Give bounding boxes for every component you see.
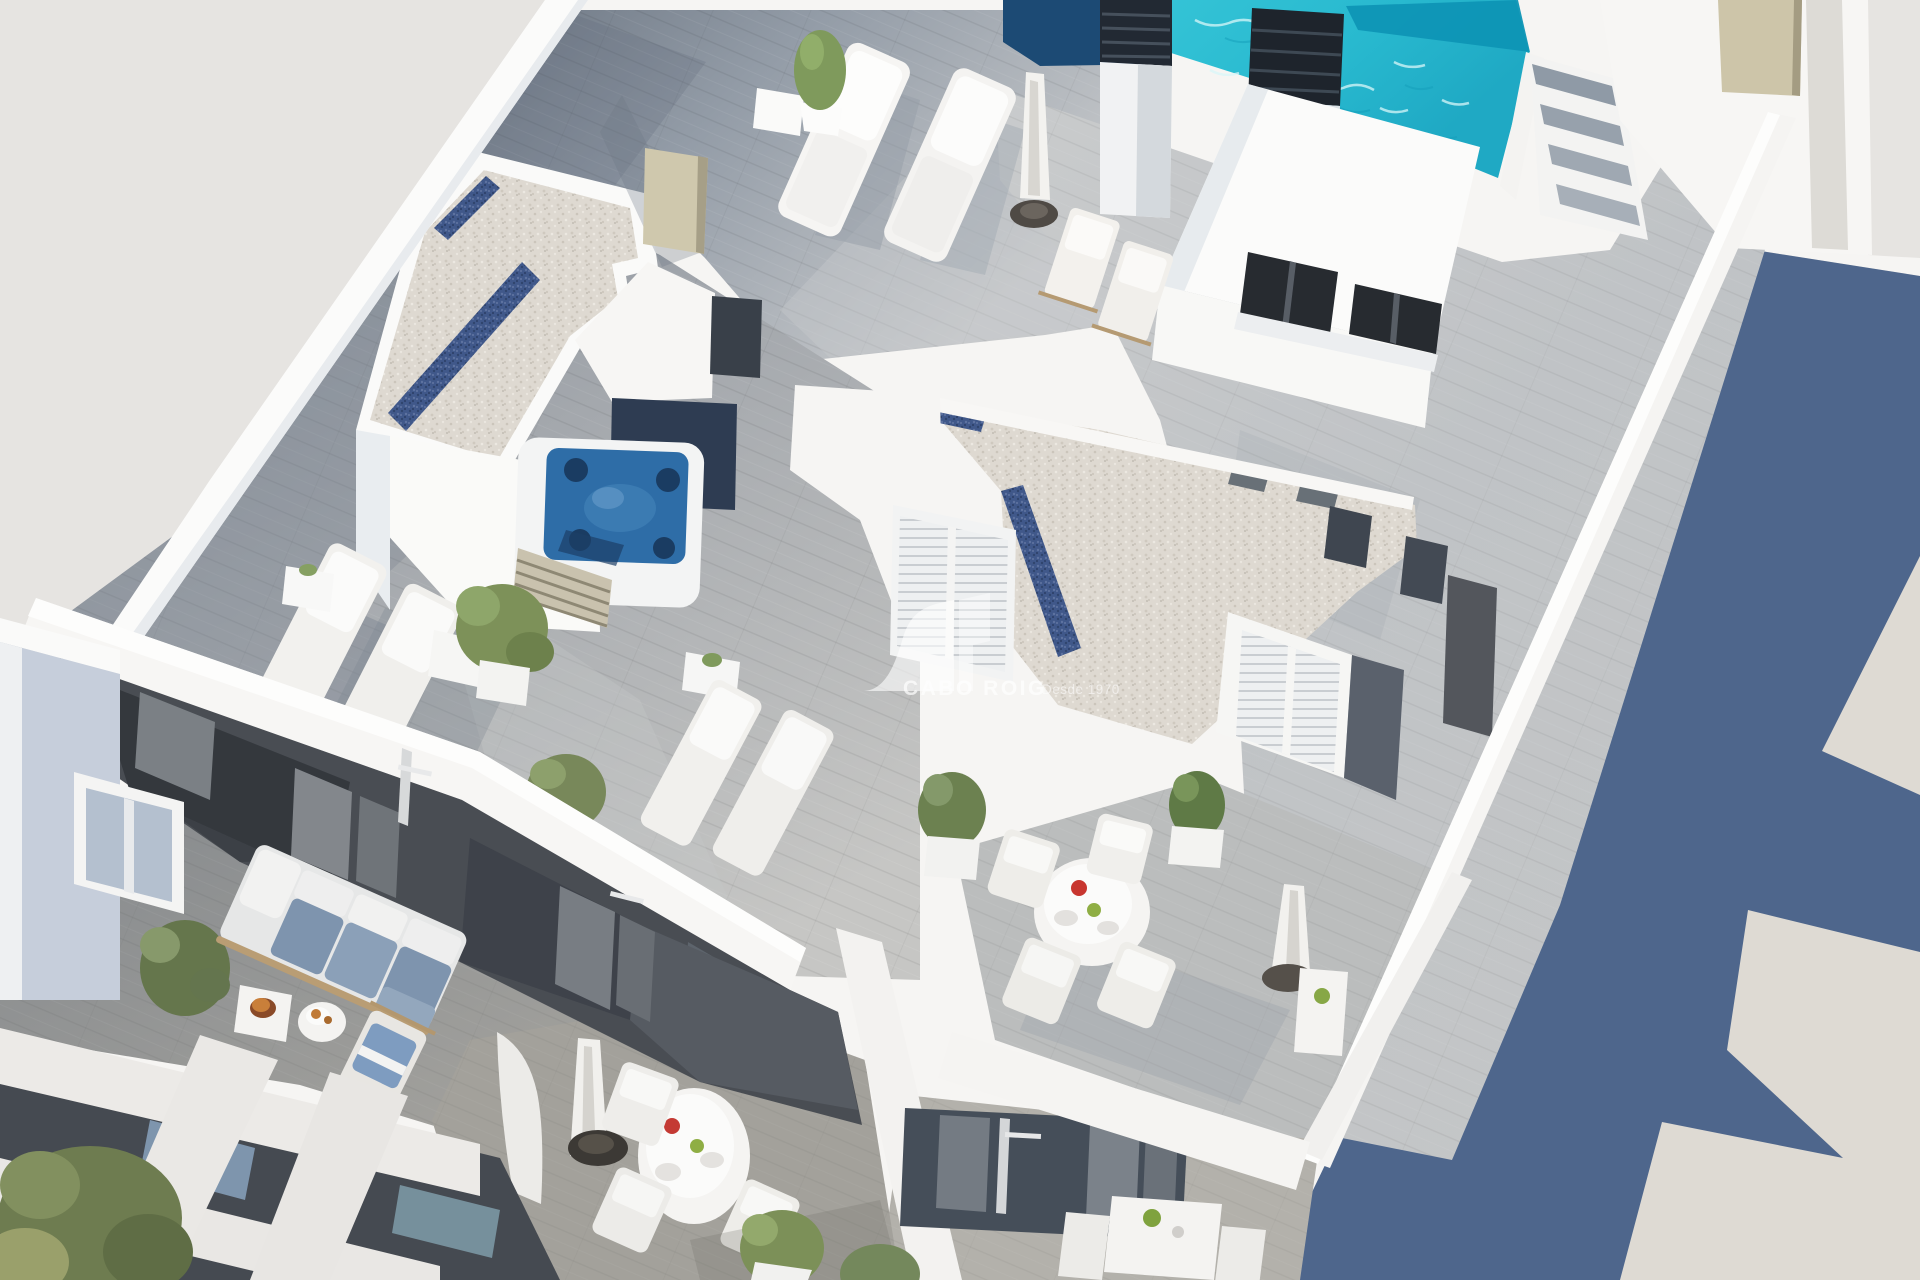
svg-text:Desde 1970: Desde 1970	[1042, 682, 1120, 697]
svg-text:CABO ROIG: CABO ROIG	[903, 677, 1047, 700]
